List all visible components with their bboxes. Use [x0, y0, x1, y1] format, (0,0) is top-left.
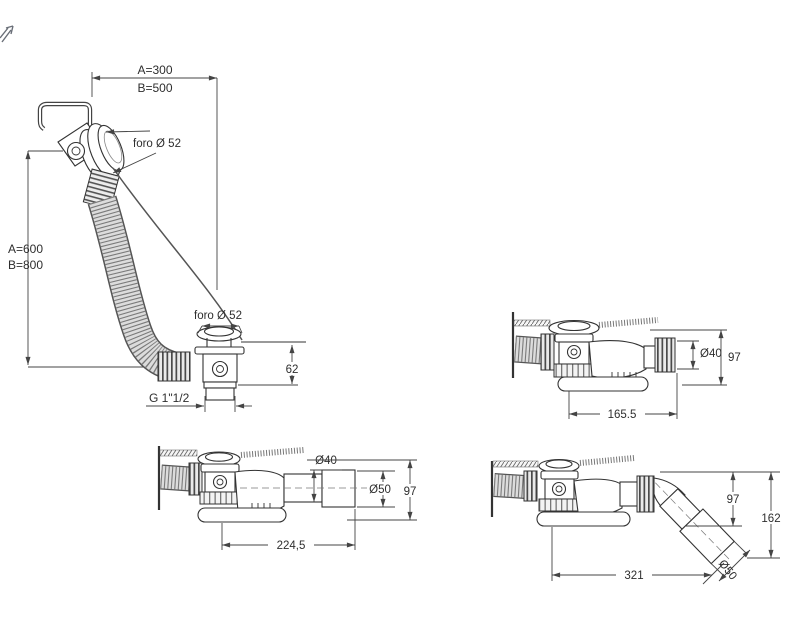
dim-label-a300: A=300 [137, 63, 172, 77]
view-outlet-straight: Ø40 97 165.5 [513, 312, 741, 421]
dim-label-321: 321 [624, 570, 643, 582]
label-foro52-overflow: foro Ø 52 [133, 138, 181, 150]
dim-outlet-d40: Ø40 [677, 341, 722, 369]
dim-label-b500: B=500 [137, 81, 172, 95]
dim-label-d40: Ø40 [700, 348, 722, 360]
dim-label-d50: Ø50 [716, 558, 739, 583]
cursor-pointer-icon [0, 26, 13, 42]
dim-label-62: 62 [286, 364, 299, 376]
dim-label-a600: A=600 [8, 242, 43, 256]
tub-hatch [160, 450, 197, 456]
overflow-head [40, 104, 129, 209]
dim-label-224: 224,5 [277, 540, 306, 552]
dim-162: 162 [747, 472, 785, 558]
cable-stub [241, 450, 304, 455]
drain-fitting-diagram: A=300 B=500 A=600 B=800 [0, 0, 800, 628]
view-outlet-angled: 97 162 321 Ø50 [492, 458, 785, 584]
dim-label-97: 97 [404, 486, 417, 498]
dim-end-d50: Ø50 [357, 471, 395, 507]
drain-body [198, 450, 372, 522]
hose-stub [161, 477, 190, 479]
dim-label-thread: G 1"1/2 [149, 391, 190, 405]
flexible-hose [102, 200, 176, 367]
dim-label-165: 165.5 [608, 409, 637, 421]
tub-hatch [493, 461, 538, 467]
view-overflow-assembly: A=300 B=500 A=600 B=800 [8, 63, 306, 412]
dim-label-d50: Ø50 [369, 484, 391, 496]
dim-thread: G 1"1/2 [146, 391, 252, 412]
dim-label-97: 97 [728, 352, 741, 364]
dim-label-162: 162 [761, 513, 780, 525]
dim-label-b800: B=800 [8, 258, 43, 272]
hose-stub [515, 349, 543, 351]
view-outlet-extension: Ø40 Ø50 97 224,5 [159, 446, 420, 552]
drain-body [537, 458, 742, 572]
hose-nut [189, 463, 202, 495]
dim-62: 62 [238, 345, 301, 385]
drain-body [549, 320, 675, 391]
tub-hatch [514, 320, 550, 326]
cable-stub [580, 458, 634, 463]
cable-stub [599, 320, 658, 325]
hose-nut [541, 334, 554, 370]
hose-nut [524, 471, 537, 501]
hose-stub [494, 485, 525, 487]
dim-label-97: 97 [727, 494, 740, 506]
label-foro52-drain: foro Ø 52 [194, 310, 242, 322]
technical-drawing-canvas: A=300 B=500 A=600 B=800 [0, 0, 800, 628]
dim-label-d40: Ø40 [315, 455, 337, 467]
